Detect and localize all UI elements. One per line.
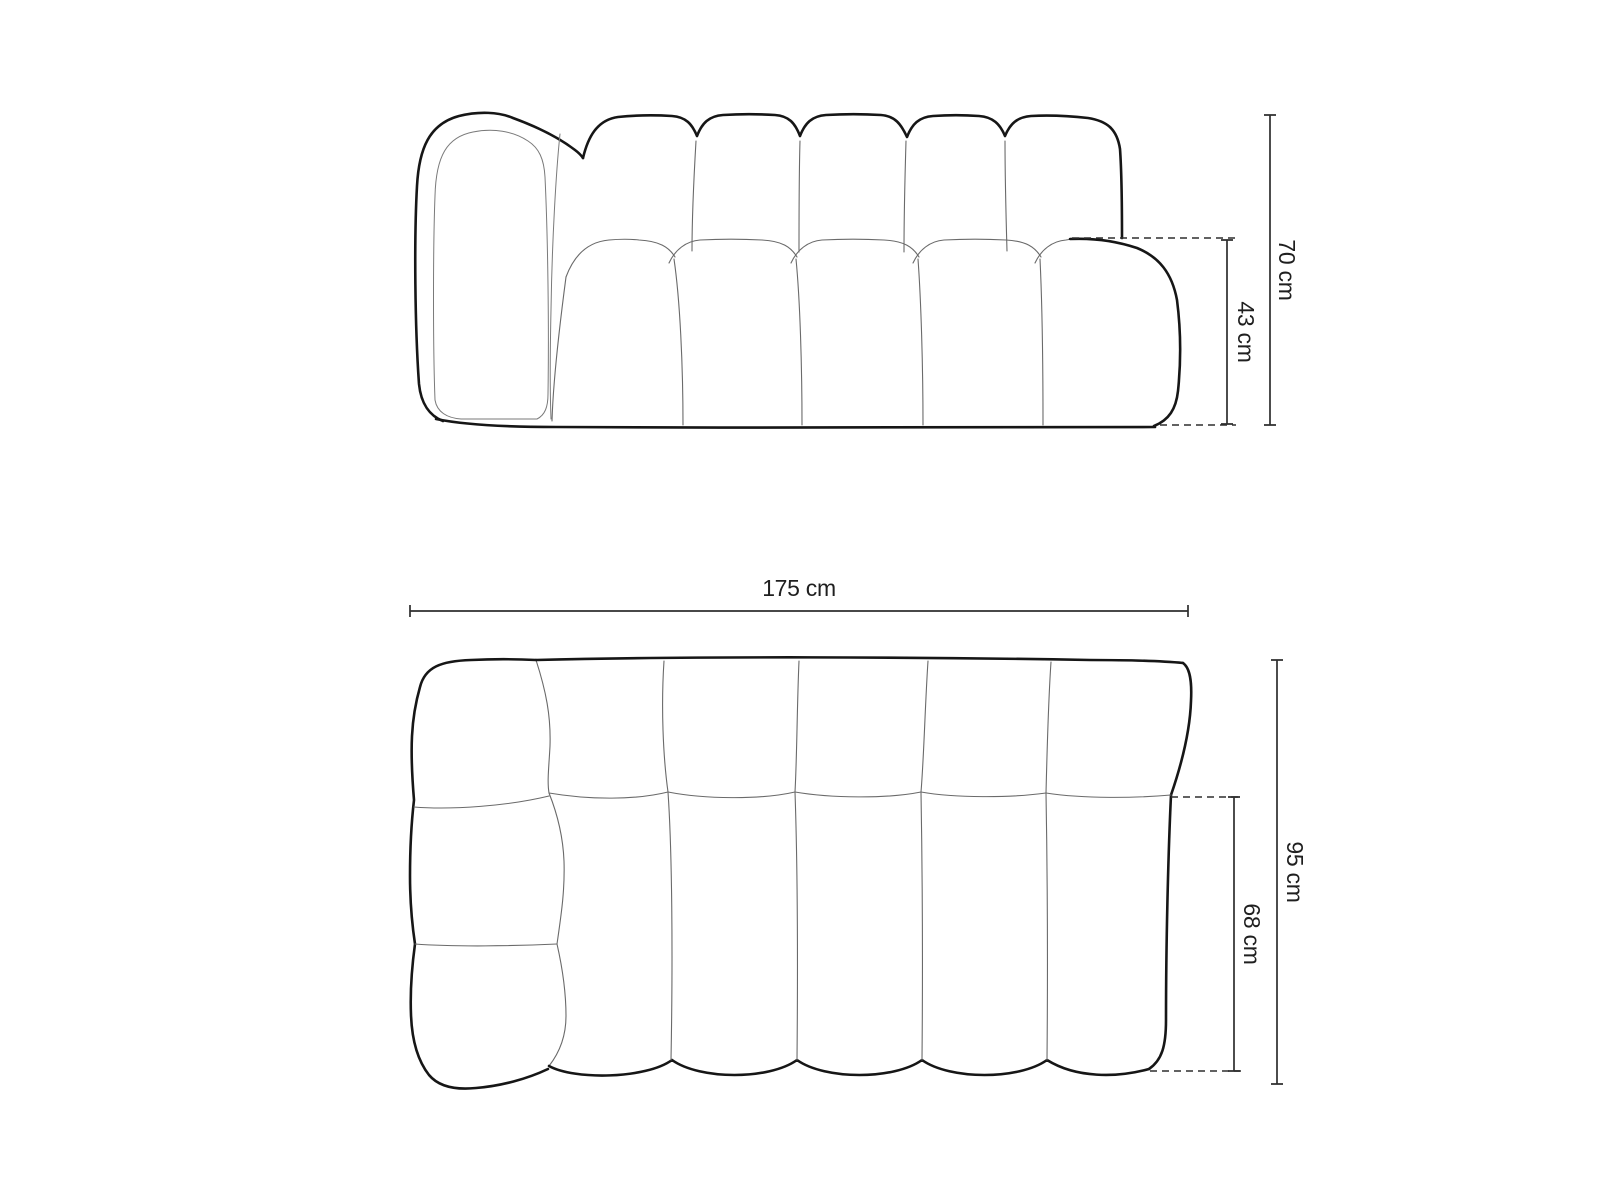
- front-view-sofa-drawing: [415, 113, 1180, 428]
- top-column-seam-2: [795, 661, 799, 1060]
- front-view: 43 cm 70 cm: [415, 113, 1300, 428]
- front-seat-seam-3: [918, 259, 923, 425]
- top-column-seam-3: [921, 661, 928, 1060]
- front-back-seam-4: [1005, 141, 1007, 251]
- front-back-seam-3: [904, 141, 906, 252]
- front-seat-top-3: [791, 239, 919, 263]
- top-body-front-scallops: [549, 1060, 1149, 1076]
- top-column-seam-1: [663, 661, 672, 1060]
- front-seat-left-edge: [552, 277, 566, 421]
- front-right-end-outline: [1070, 239, 1180, 426]
- top-armrest-seam-2: [415, 944, 557, 946]
- front-seat-height-label: 43 cm: [1233, 301, 1259, 362]
- front-seat-top-2: [669, 239, 797, 263]
- top-total-width-label: 175 cm: [762, 575, 836, 601]
- top-seat-depth-label: 68 cm: [1239, 903, 1265, 964]
- sofa-dimension-diagram: 43 cm 70 cm 175 cm: [0, 0, 1600, 1200]
- top-body-right-back-corner: [1171, 663, 1191, 795]
- top-view-sofa-drawing: [410, 657, 1191, 1088]
- top-column-seam-4: [1046, 662, 1051, 1060]
- front-seat-height-dimension: 43 cm: [1072, 238, 1259, 425]
- top-view: 175 cm 68 cm: [410, 575, 1308, 1089]
- top-body-right-edge: [1149, 795, 1171, 1069]
- front-seat-seam-2: [796, 259, 802, 425]
- front-back-seam-2: [799, 141, 800, 252]
- top-armrest-seam-1: [414, 796, 549, 808]
- top-total-depth-dimension: 95 cm: [1271, 660, 1308, 1084]
- front-back-cushions-outline: [583, 114, 1122, 238]
- front-base-line: [436, 419, 1155, 428]
- top-armrest-body-boundary: [536, 660, 566, 1066]
- top-total-depth-line: [1271, 660, 1283, 1084]
- top-armrest-outline: [410, 659, 548, 1088]
- diagram-canvas: 43 cm 70 cm 175 cm: [0, 0, 1600, 1200]
- front-total-height-dimension: 70 cm: [1264, 115, 1300, 425]
- top-back-seat-seam: [549, 792, 1171, 798]
- front-total-height-label: 70 cm: [1274, 239, 1300, 300]
- front-seat-height-line: [1221, 240, 1233, 424]
- top-seat-depth-line: [1228, 797, 1240, 1071]
- front-seat-top-4: [913, 239, 1041, 263]
- front-seat-seam-4: [1040, 259, 1043, 425]
- top-total-width-line: [410, 605, 1188, 617]
- front-seat-seam-1: [674, 259, 683, 425]
- front-back-seam-1: [692, 141, 696, 251]
- front-seat-top-1: [566, 239, 675, 277]
- top-body-top-edge: [536, 657, 1183, 663]
- top-total-width-dimension: 175 cm: [410, 575, 1188, 617]
- top-total-depth-label: 95 cm: [1282, 841, 1308, 902]
- front-armrest-inner-panel: [434, 130, 549, 419]
